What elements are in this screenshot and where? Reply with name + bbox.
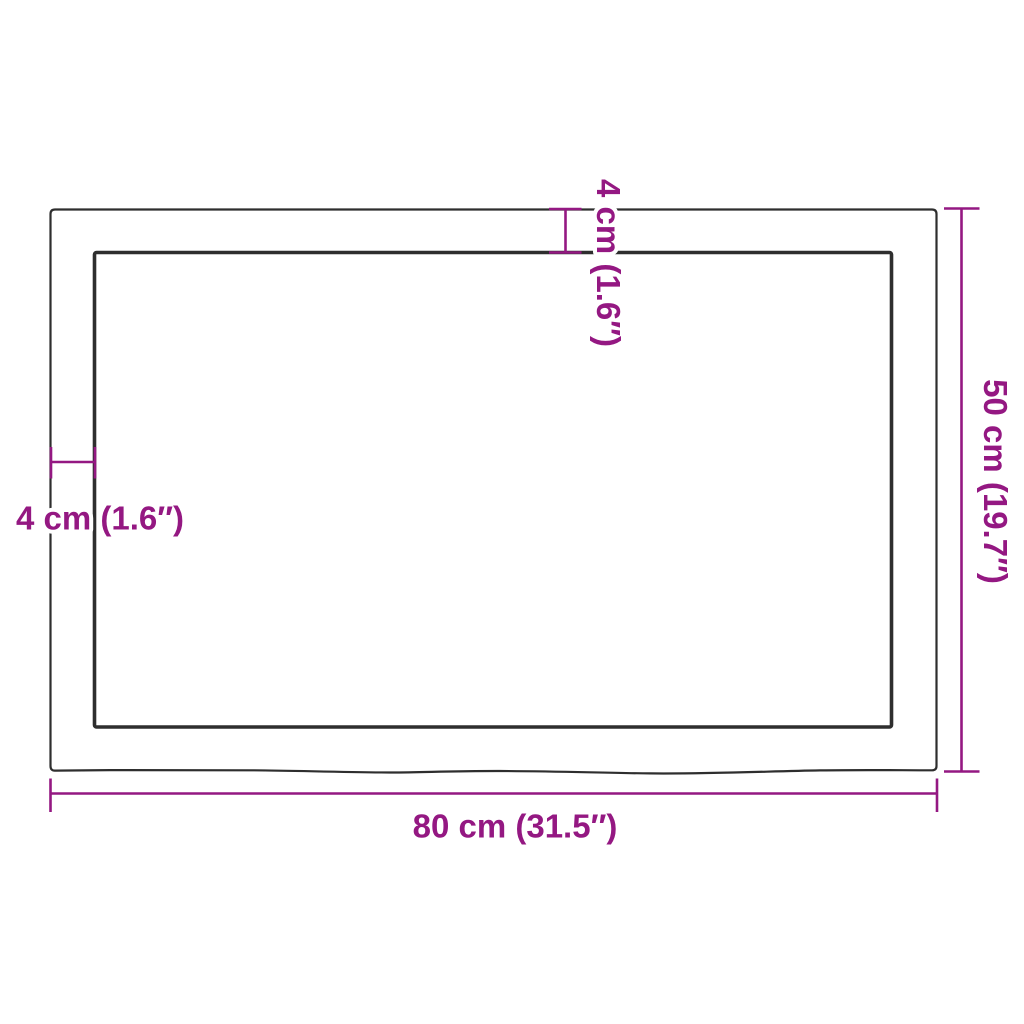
svg-text:4 cm (1.6″): 4 cm (1.6″) [590, 179, 627, 347]
svg-text:4 cm (1.6″): 4 cm (1.6″) [16, 500, 184, 537]
svg-text:50 cm (19.7″): 50 cm (19.7″) [977, 379, 1014, 584]
svg-text:80 cm (31.5″): 80 cm (31.5″) [413, 808, 618, 845]
